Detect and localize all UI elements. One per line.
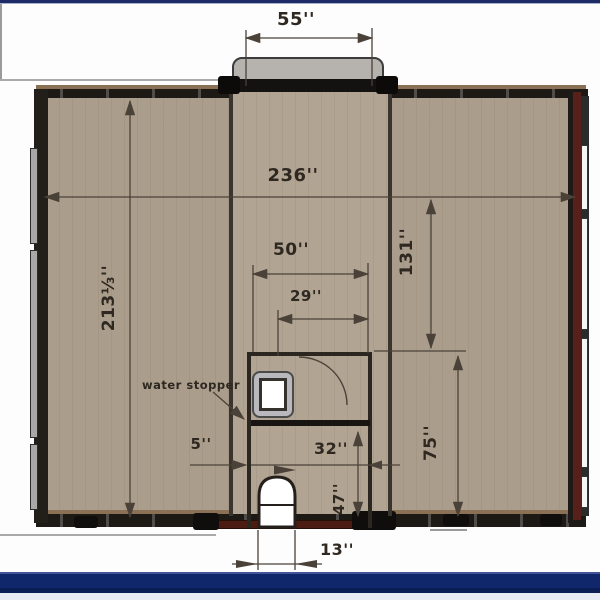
bottom-light-strip [0, 593, 600, 600]
dim-left-gap-label: 5'' [181, 435, 221, 453]
dim-bath-door-span-label: 29'' [281, 287, 331, 305]
floor-plan-screenshot: 55'' 236'' 213⅓'' 131'' 50'' 29'' 5'' 32… [0, 0, 600, 600]
dim-wc-depth-label: 47'' [330, 468, 348, 530]
dim-overall-depth-label: 213⅓'' [99, 252, 119, 344]
dim-bath-inner-width-label: 32'' [306, 439, 356, 458]
water-stopper-curb [251, 420, 370, 426]
dim-bath-outer-width-label: 50'' [261, 240, 321, 260]
water-stopper-label: water stopper [142, 378, 218, 392]
dim-door-width-label: 13'' [312, 540, 362, 559]
dim-right-room-depth-label: 131'' [397, 212, 417, 292]
bottom-navy-band [0, 572, 600, 593]
dim-overall-width-label: 236'' [258, 165, 328, 186]
water-stopper-leader [213, 392, 244, 419]
dim-porch-width-label: 55'' [266, 9, 326, 30]
door-swing-arc [299, 357, 347, 405]
toilet-icon [259, 477, 295, 527]
dim-right-lower-depth-label: 75'' [421, 403, 441, 483]
